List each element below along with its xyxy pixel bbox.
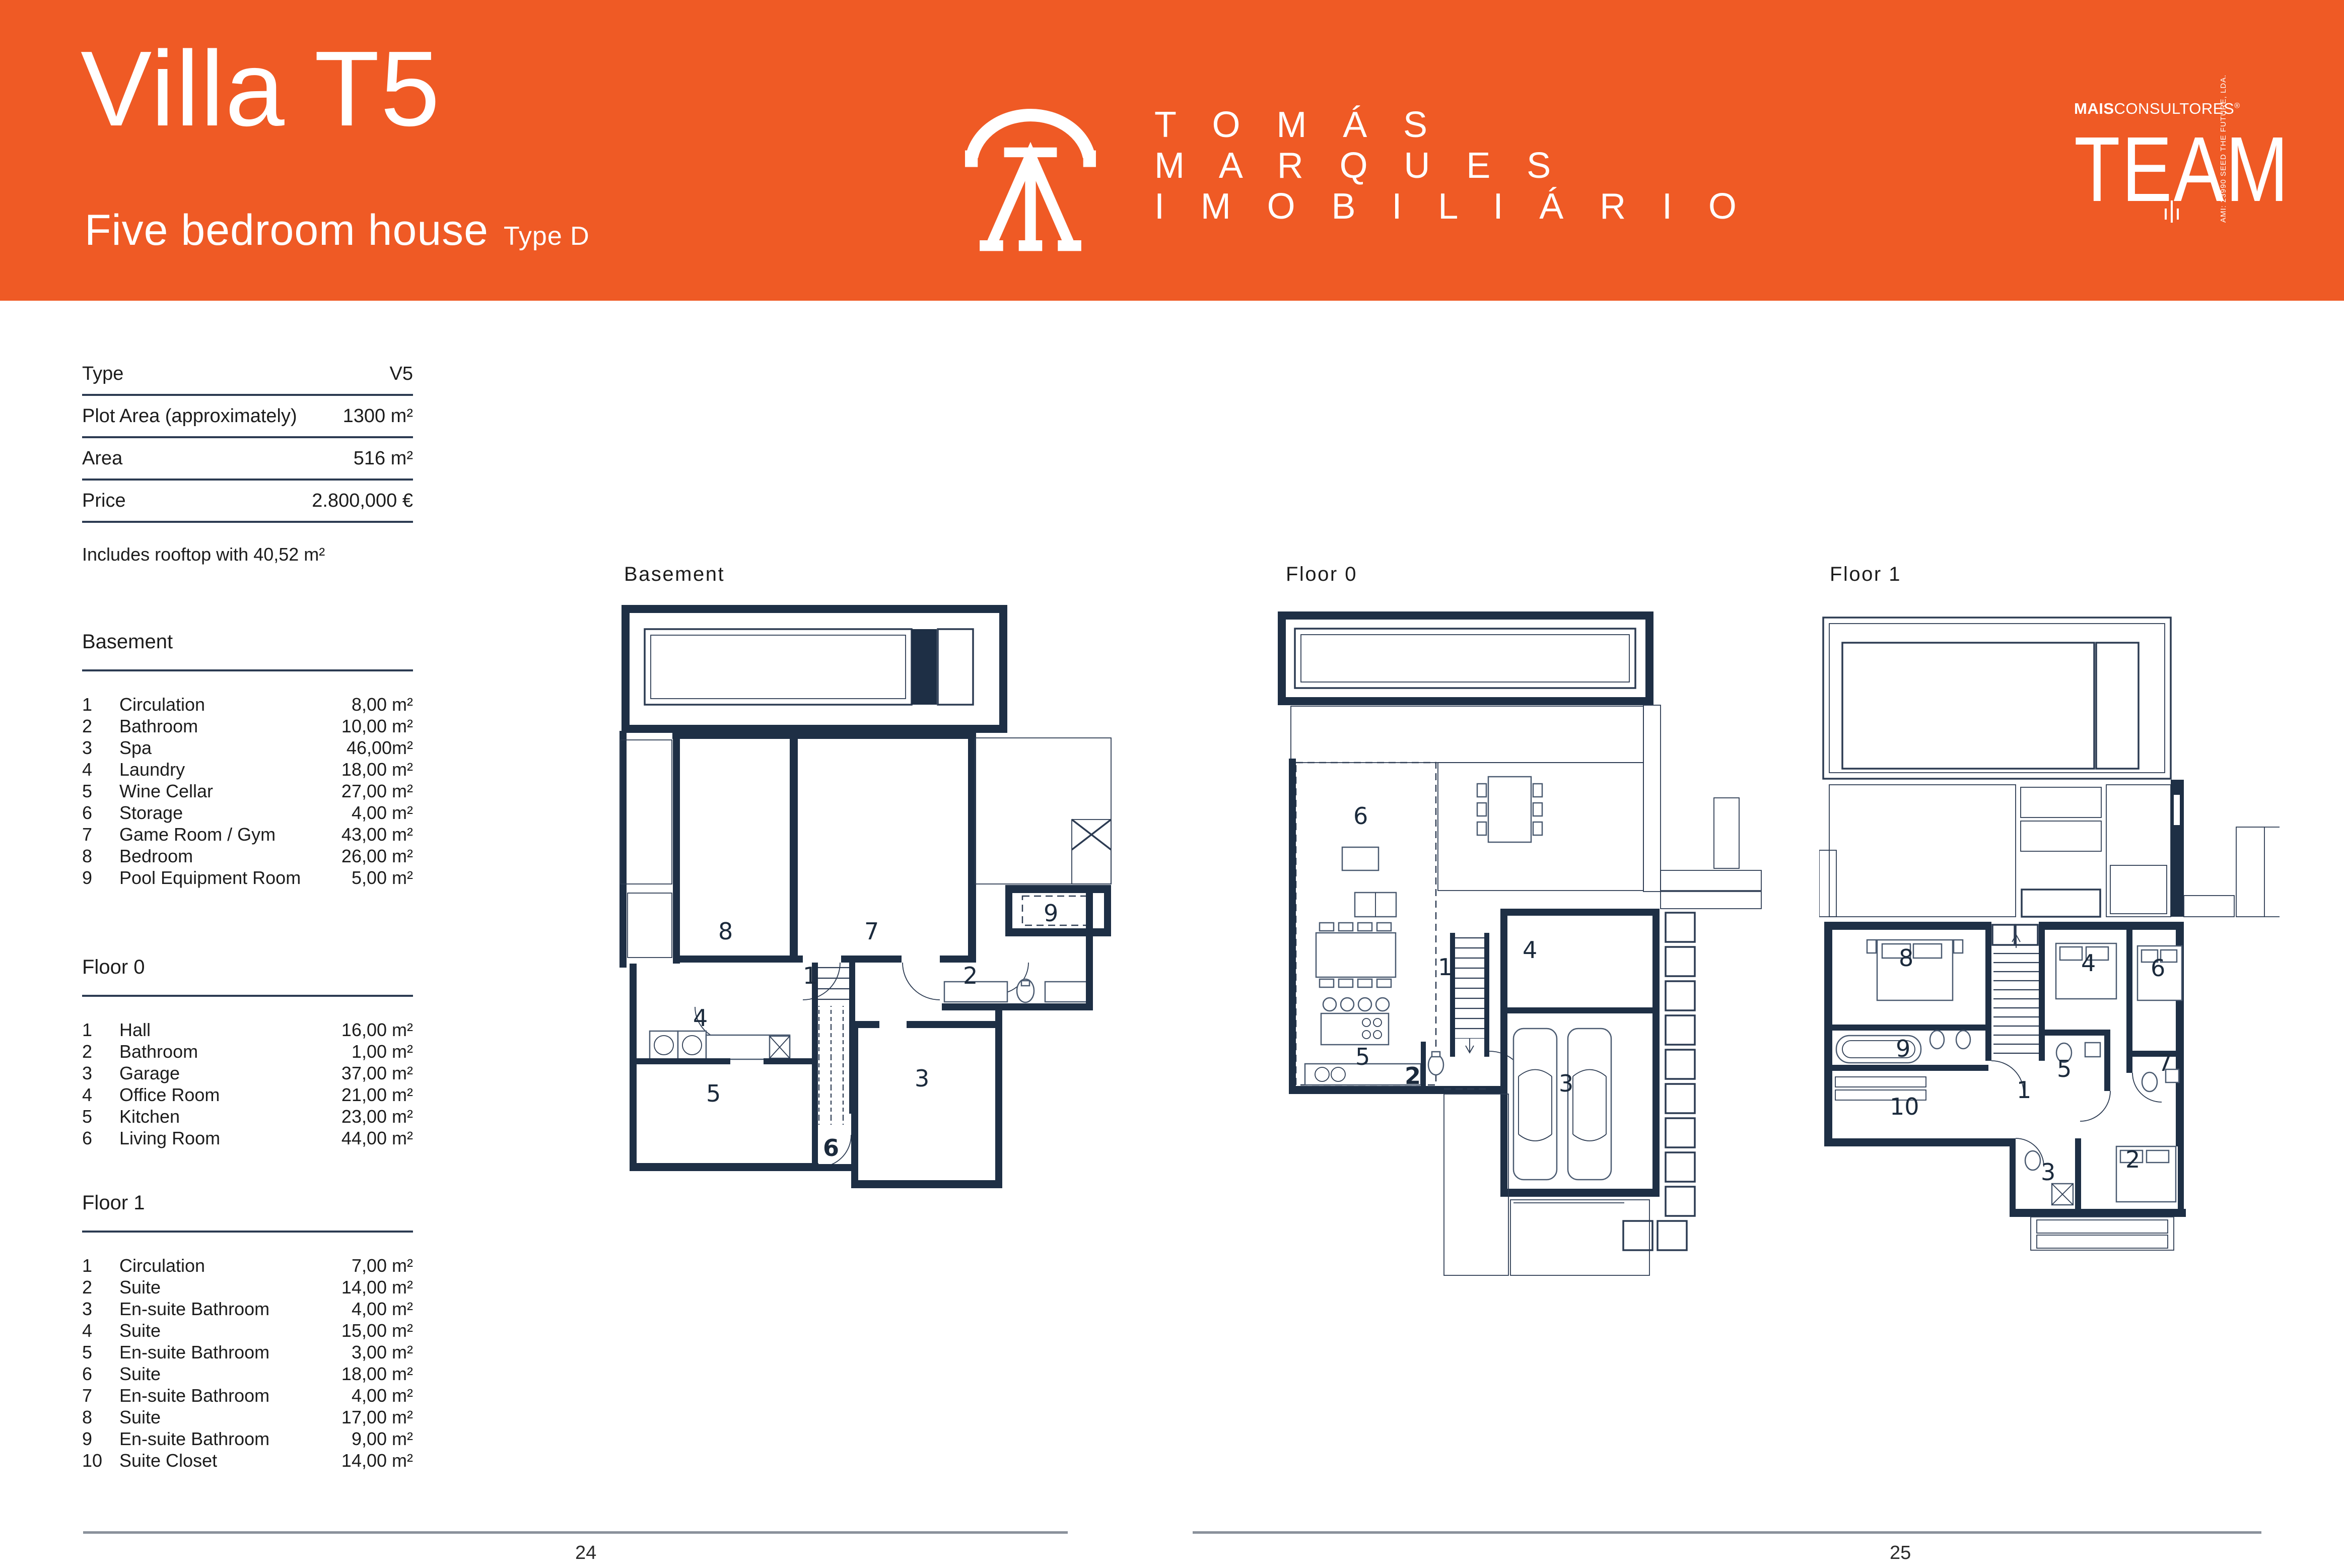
team-wordmark: TEAM (2074, 123, 2240, 215)
room-number: 7 (2158, 1049, 2172, 1076)
spec-row: Plot Area (approximately) 1300 m² (82, 396, 413, 438)
room-row-name: Garage (119, 1062, 341, 1084)
section-rows: 1 Hall 16,00 m² 2 Bathroom 1,00 m² 3 Gar… (82, 1019, 413, 1149)
room-list-row: 5 Wine Cellar 27,00 m² (82, 780, 413, 802)
room-list-row: 3 Spa 46,00m² (82, 737, 413, 759)
page-subtitle: Five bedroom houseType D (85, 206, 590, 255)
room-row-area: 10,00 m² (341, 715, 413, 737)
section-title: Floor 0 (82, 956, 413, 997)
room-row-number: 8 (82, 1406, 119, 1428)
room-row-area: 26,00 m² (341, 845, 413, 867)
room-list-row: 8 Bedroom 26,00 m² (82, 845, 413, 867)
page-number-right: 25 (1890, 1542, 1911, 1564)
ami-side-text: AMI: 23990 SEED THE FUTURE, LDA. (2219, 122, 2228, 223)
room-row-area: 18,00 m² (341, 759, 413, 780)
room-row-number: 1 (82, 1255, 119, 1276)
room-number: 5 (1355, 1043, 1370, 1070)
spec-value: 516 m² (354, 448, 413, 469)
room-number: 6 (2151, 955, 2165, 982)
brochure-page: Villa T5 Five bedroom houseType D T O M … (0, 0, 2344, 1568)
room-number: 2 (963, 962, 978, 989)
rooftop-note: Includes rooftop with 40,52 m² (82, 544, 325, 565)
room-row-number: 3 (82, 737, 119, 759)
section-floor0: Floor 0 1 Hall 16,00 m² 2 Bathroom 1,00 … (82, 956, 413, 1149)
room-row-name: Kitchen (119, 1106, 341, 1127)
room-row-area: 7,00 m² (352, 1255, 413, 1276)
room-row-number: 2 (82, 715, 119, 737)
room-number: 3 (2041, 1158, 2055, 1186)
room-row-name: En-suite Bathroom (119, 1385, 352, 1406)
room-row-name: Living Room (119, 1127, 341, 1149)
room-list-row: 1 Hall 16,00 m² (82, 1019, 413, 1041)
room-list-row: 6 Storage 4,00 m² (82, 802, 413, 824)
room-list-row: 9 En-suite Bathroom 9,00 m² (82, 1428, 413, 1450)
room-row-area: 4,00 m² (352, 1298, 413, 1320)
specs-table: Type V5 Plot Area (approximately) 1300 m… (82, 354, 413, 523)
room-row-name: Game Room / Gym (119, 824, 341, 845)
car-icon (1568, 1029, 1611, 1180)
room-list-row: 1 Circulation 8,00 m² (82, 694, 413, 715)
room-row-number: 9 (82, 867, 119, 889)
header-band: Villa T5 Five bedroom houseType D T O M … (0, 0, 2344, 301)
room-row-area: 27,00 m² (341, 780, 413, 802)
spec-row: Type V5 (82, 354, 413, 396)
room-row-name: En-suite Bathroom (119, 1298, 352, 1320)
room-row-number: 4 (82, 759, 119, 780)
room-number: 5 (2057, 1055, 2072, 1082)
room-row-number: 8 (82, 845, 119, 867)
room-row-number: 6 (82, 1127, 119, 1149)
room-list-row: 3 Garage 37,00 m² (82, 1062, 413, 1084)
room-row-name: Suite (119, 1363, 341, 1385)
room-row-name: Office Room (119, 1084, 341, 1106)
registered-mark: ® (2234, 102, 2240, 110)
team-rocket-icon (2161, 198, 2183, 224)
room-number: 1 (1438, 953, 1453, 981)
room-number: 2 (2125, 1146, 2140, 1173)
room-list-row: 6 Living Room 44,00 m² (82, 1127, 413, 1149)
room-row-name: Suite Closet (119, 1450, 341, 1471)
room-row-number: 2 (82, 1276, 119, 1298)
room-row-number: 6 (82, 1363, 119, 1385)
room-row-area: 44,00 m² (341, 1127, 413, 1149)
room-row-number: 4 (82, 1084, 119, 1106)
room-row-name: Circulation (119, 694, 352, 715)
plan-label-floor0: Floor 0 (1286, 563, 1357, 586)
floorplan-floor0: 6 5 2 1 4 3 (1277, 610, 1772, 1278)
room-list-row: 1 Circulation 7,00 m² (82, 1255, 413, 1276)
room-list-row: 2 Bathroom 10,00 m² (82, 715, 413, 737)
room-list-row: 5 Kitchen 23,00 m² (82, 1106, 413, 1127)
room-row-number: 5 (82, 1106, 119, 1127)
room-row-area: 3,00 m² (352, 1341, 413, 1363)
footer-divider-left (83, 1531, 1068, 1534)
room-list-row: 3 En-suite Bathroom 4,00 m² (82, 1298, 413, 1320)
room-row-number: 7 (82, 1385, 119, 1406)
room-row-name: Bedroom (119, 845, 341, 867)
brand-name: T O M Á S M A R Q U E S I M O B I L I Á … (1154, 105, 1750, 227)
room-list-row: 6 Suite 18,00 m² (82, 1363, 413, 1385)
room-row-area: 14,00 m² (341, 1276, 413, 1298)
room-row-area: 46,00m² (347, 737, 413, 759)
floorplan-floor1: 8 9 10 1 4 5 6 7 2 3 (1819, 613, 2280, 1253)
room-row-area: 37,00 m² (341, 1062, 413, 1084)
room-row-number: 3 (82, 1062, 119, 1084)
room-number: 7 (864, 918, 879, 945)
room-list-row: 9 Pool Equipment Room 5,00 m² (82, 867, 413, 889)
section-basement: Basement 1 Circulation 8,00 m² 2 Bathroo… (82, 631, 413, 889)
room-row-area: 16,00 m² (341, 1019, 413, 1041)
subtitle-text: Five bedroom house (85, 206, 489, 254)
room-row-name: Suite (119, 1406, 341, 1428)
spec-label: Price (82, 490, 126, 512)
room-list-row: 4 Suite 15,00 m² (82, 1320, 413, 1341)
spec-row: Area 516 m² (82, 438, 413, 481)
room-row-number: 5 (82, 1341, 119, 1363)
floorplan-basement: 8 7 9 1 2 4 5 6 3 (619, 603, 1114, 1192)
room-number: 4 (693, 1004, 708, 1032)
section-rows: 1 Circulation 7,00 m² 2 Suite 14,00 m² 3… (82, 1255, 413, 1471)
room-row-name: Circulation (119, 1255, 352, 1276)
spec-row: Price 2.800,000 € (82, 481, 413, 523)
page-number-left: 24 (575, 1542, 596, 1564)
section-title: Basement (82, 631, 413, 671)
room-number: 9 (1044, 900, 1058, 927)
room-row-area: 5,00 m² (352, 867, 413, 889)
room-row-area: 14,00 m² (341, 1450, 413, 1471)
team-logo: MAISCONSULTORES® TEAM AMI: 23990 SEED TH… (2074, 100, 2240, 198)
room-row-name: Laundry (119, 759, 341, 780)
room-row-number: 1 (82, 1019, 119, 1041)
room-number: 2 (1405, 1062, 1421, 1089)
spec-label: Type (82, 363, 123, 385)
room-number: 4 (1523, 936, 1537, 964)
room-row-name: Suite (119, 1320, 341, 1341)
tm-monogram-icon (955, 96, 1106, 257)
spec-value: V5 (390, 363, 413, 385)
room-number: 1 (803, 962, 817, 989)
spec-value: 1300 m² (343, 405, 413, 427)
spec-label: Area (82, 448, 122, 469)
room-row-number: 2 (82, 1041, 119, 1062)
brand-line-3: I M O B I L I Á R I O (1154, 186, 1750, 227)
room-number: 10 (1890, 1093, 1919, 1120)
room-number: 8 (718, 918, 733, 945)
room-list-row: 8 Suite 17,00 m² (82, 1406, 413, 1428)
room-row-number: 4 (82, 1320, 119, 1341)
room-row-area: 15,00 m² (341, 1320, 413, 1341)
room-list-row: 4 Office Room 21,00 m² (82, 1084, 413, 1106)
room-row-name: Wine Cellar (119, 780, 341, 802)
room-number: 3 (1559, 1070, 1573, 1097)
room-row-number: 6 (82, 802, 119, 824)
spec-label: Plot Area (approximately) (82, 405, 297, 427)
room-number: 8 (1899, 944, 1913, 972)
room-list-row: 2 Suite 14,00 m² (82, 1276, 413, 1298)
room-row-name: Suite (119, 1276, 341, 1298)
room-list-row: 4 Laundry 18,00 m² (82, 759, 413, 780)
room-list-row: 5 En-suite Bathroom 3,00 m² (82, 1341, 413, 1363)
room-row-name: En-suite Bathroom (119, 1341, 352, 1363)
room-list-row: 7 Game Room / Gym 43,00 m² (82, 824, 413, 845)
section-rows: 1 Circulation 8,00 m² 2 Bathroom 10,00 m… (82, 694, 413, 889)
room-row-area: 18,00 m² (341, 1363, 413, 1385)
spec-value: 2.800,000 € (312, 490, 413, 512)
room-number: 5 (706, 1080, 721, 1107)
brand-line-2: M A R Q U E S (1154, 146, 1750, 186)
room-row-name: En-suite Bathroom (119, 1428, 352, 1450)
room-number: 6 (1353, 802, 1368, 830)
room-row-number: 10 (82, 1450, 119, 1471)
room-number: 6 (823, 1134, 839, 1162)
room-number: 9 (1896, 1035, 1910, 1062)
room-row-name: Spa (119, 737, 347, 759)
mais-text: MAIS (2074, 100, 2114, 117)
room-row-number: 1 (82, 694, 119, 715)
type-label: Type D (504, 222, 590, 251)
consultores-text: CONSULTORES (2114, 100, 2235, 117)
room-row-number: 5 (82, 780, 119, 802)
room-number: 1 (2017, 1076, 2031, 1104)
section-title: Floor 1 (82, 1192, 413, 1233)
room-number: 3 (915, 1065, 929, 1092)
room-row-name: Bathroom (119, 715, 341, 737)
room-list-row: 2 Bathroom 1,00 m² (82, 1041, 413, 1062)
bed-icon (1867, 940, 1963, 1000)
room-row-area: 9,00 m² (352, 1428, 413, 1450)
room-list-row: 7 En-suite Bathroom 4,00 m² (82, 1385, 413, 1406)
brand-line-1: T O M Á S (1154, 105, 1750, 146)
plan-label-basement: Basement (624, 563, 725, 586)
maisconsultores-text: MAISCONSULTORES® (2074, 100, 2240, 118)
room-row-name: Hall (119, 1019, 341, 1041)
section-floor1: Floor 1 1 Circulation 7,00 m² 2 Suite 14… (82, 1192, 413, 1471)
plan-label-floor1: Floor 1 (1830, 563, 1901, 586)
room-row-area: 17,00 m² (341, 1406, 413, 1428)
room-row-area: 23,00 m² (341, 1106, 413, 1127)
room-row-number: 7 (82, 824, 119, 845)
page-title: Villa T5 (81, 35, 441, 142)
room-row-area: 21,00 m² (341, 1084, 413, 1106)
room-row-name: Storage (119, 802, 352, 824)
room-row-number: 9 (82, 1428, 119, 1450)
room-row-area: 8,00 m² (352, 694, 413, 715)
room-row-area: 4,00 m² (352, 802, 413, 824)
footer-divider-right (1193, 1531, 2261, 1534)
car-icon (1513, 1029, 1557, 1180)
room-row-name: Pool Equipment Room (119, 867, 352, 889)
room-number: 4 (2081, 949, 2096, 977)
room-row-name: Bathroom (119, 1041, 352, 1062)
room-list-row: 10 Suite Closet 14,00 m² (82, 1450, 413, 1471)
room-row-number: 3 (82, 1298, 119, 1320)
room-row-area: 4,00 m² (352, 1385, 413, 1406)
room-row-area: 43,00 m² (341, 824, 413, 845)
room-row-area: 1,00 m² (352, 1041, 413, 1062)
